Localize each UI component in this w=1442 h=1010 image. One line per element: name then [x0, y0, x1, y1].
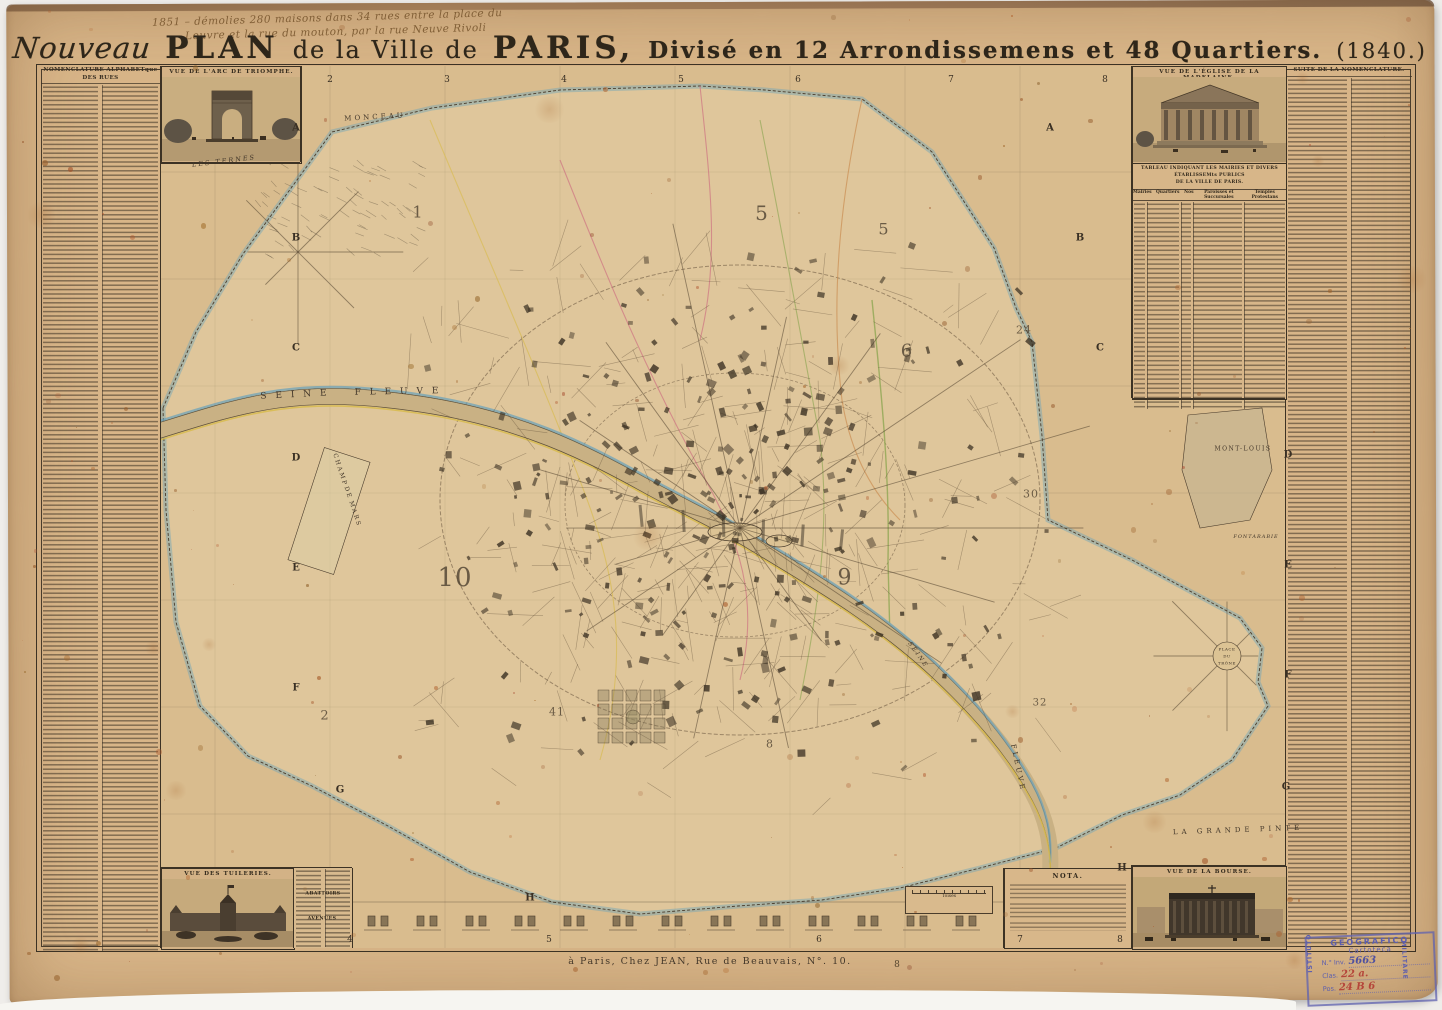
grid-number-top: 2 [327, 75, 333, 85]
margin-letter-left: E [292, 563, 300, 574]
margin-letter-left: C [292, 343, 300, 354]
map-label: F L E U V E [355, 386, 442, 398]
tableau-title-line1: TABLEAU INDIQUANT LES MAIRIES ET DIVERS … [1141, 166, 1278, 178]
column-subheader: AVENUES [308, 917, 337, 922]
divider-bourse-top [1132, 865, 1285, 866]
margin-letter-left: A [292, 123, 300, 134]
district-number: 32 [1033, 698, 1048, 709]
margin-letter-left: H [525, 893, 534, 904]
margin-letter-left: G [336, 785, 345, 796]
grid-number-bottom: 8 [1117, 935, 1123, 945]
district-number: 8 [766, 738, 774, 751]
stamp-clas-label: Clas. [1322, 971, 1338, 980]
divider-left-column [160, 66, 161, 948]
map-label: MONT-LOUIS [1214, 446, 1271, 453]
nota-paragraph-1 [1010, 883, 1126, 899]
margin-letter-right: E [1284, 560, 1292, 571]
bottom-left-mini-column [294, 868, 352, 948]
district-number: 24 [1016, 324, 1032, 337]
nota-title: NOTA. [1005, 869, 1131, 880]
margin-letter-right: D [1284, 450, 1293, 461]
district-number: 30 [1023, 488, 1039, 501]
bourse-engraving [1133, 877, 1286, 947]
stamp-militare: MILITARE [1400, 940, 1409, 980]
margin-letter-right: A [1046, 123, 1054, 134]
district-number: 1 [412, 203, 423, 222]
vignette-arc-de-triomphe: VUE DE L'ARC DE TRIOMPHE. [161, 66, 302, 164]
scan-background-bottom [0, 990, 1296, 1010]
stamp-pos-value: 24 B 6 [1339, 978, 1431, 994]
district-number: 41 [549, 706, 565, 719]
district-number: 5 [878, 220, 889, 239]
divider-tableau-bottom [1132, 398, 1285, 399]
left-column-subcol-1 [43, 85, 98, 951]
district-number: 9 [838, 566, 853, 591]
grid-number-top: 3 [444, 75, 450, 85]
nota-paragraph-2 [1010, 902, 1126, 918]
plate-number: 8 [894, 960, 900, 970]
tableau-col-nos: Nos [1184, 190, 1194, 200]
margin-letter-left: F [292, 683, 299, 694]
tableau-col-paroisses: Paroisses et Succursales [1194, 190, 1244, 200]
column-subheader: ABATTOIRS [305, 892, 340, 897]
margin-letter-left: D [292, 453, 301, 464]
tableau-col-quartiers: Quartiers [1152, 190, 1184, 200]
divider-nota [1003, 868, 1004, 948]
left-column-subcol-2 [102, 85, 158, 951]
scanned-map-page: 1851 – démolies 280 maisons dans 34 rues… [0, 0, 1442, 1010]
grid-number-bottom: 4 [347, 935, 353, 945]
grid-number-top: 5 [678, 75, 684, 85]
vignette-bourse-caption: VUE DE LA BOURSE. [1133, 869, 1286, 875]
grid-number-bottom: 6 [816, 935, 822, 945]
nota-paragraph-3 [1010, 921, 1126, 931]
arc-de-triomphe-engraving [162, 77, 301, 161]
right-column-text [1286, 77, 1412, 945]
right-column-subcol-2 [1351, 78, 1411, 944]
vignette-tuileries-caption: VUE DES TUILERIES. [162, 871, 294, 877]
district-number: 6 [901, 341, 913, 362]
map-label: TRÔNE [1218, 661, 1236, 666]
nota-block: NOTA. [1004, 868, 1132, 949]
divider-arc-vignette [300, 66, 301, 162]
publisher-imprint: à Paris, Chez JEAN, Rue de Beauvais, N°.… [360, 956, 1060, 967]
tableau-col-temples: Temples Protestans [1244, 190, 1286, 200]
scale-label: Toises [942, 894, 956, 899]
margin-letter-right: B [1076, 233, 1084, 244]
district-number: 5 [755, 201, 769, 225]
tableau-column-headers: Mairies Quartiers Nos Paroisses et Succu… [1133, 190, 1286, 201]
margin-letter-right: G [1282, 782, 1291, 793]
grid-number-top: 7 [948, 75, 954, 85]
mini-column-text [294, 868, 352, 948]
right-column-subcol-1 [1288, 78, 1347, 944]
scale-box: Toises [905, 886, 993, 914]
grid-number-top: 6 [795, 75, 801, 85]
left-column-text [41, 84, 160, 952]
left-nomenclature-column: NOMENCLATURE ALPHABETque DES RUES [41, 66, 160, 948]
tableau-col-mairies: Mairies [1133, 190, 1152, 200]
vignette-madelaine: VUE DE L'ÉGLISE DE LA MADELAINE. [1132, 66, 1287, 165]
district-number: 2 [320, 709, 329, 724]
grid-number-top: 4 [561, 75, 567, 85]
tableau-body [1133, 201, 1286, 410]
margin-letter-right: H [1117, 863, 1126, 874]
library-stamp: GEOGRAFICO ISTITUTO MILITARE Cartoteca N… [1305, 931, 1438, 1007]
map-label: FONTARABIE [1233, 534, 1278, 540]
stamp-pos-label: Pos. [1323, 985, 1336, 994]
vignette-tuileries: VUE DES TUILERIES. [161, 868, 295, 950]
vignette-arc-caption: VUE DE L'ARC DE TRIOMPHE. [162, 69, 301, 75]
stamp-inv-label: N.° Inv. [1322, 958, 1346, 967]
tuileries-engraving [162, 879, 294, 947]
margin-letter-right: F [1284, 670, 1291, 681]
grid-number-bottom: 7 [1017, 935, 1023, 945]
grid-number-bottom: 5 [546, 935, 552, 945]
right-column-header: SUITE DE LA NOMENCLATURE. [1286, 66, 1412, 77]
left-column-header: NOMENCLATURE ALPHABETque DES RUES [41, 66, 160, 84]
map-label: DU [1223, 654, 1231, 659]
grid-number-top: 8 [1102, 75, 1108, 85]
mini-column-subcol-1 [296, 869, 321, 947]
tableau-title-line2: DE LA VILLE DE PARIS. [1176, 180, 1244, 185]
tableau-mairies: TABLEAU INDIQUANT LES MAIRIES ET DIVERS … [1132, 163, 1287, 400]
map-label: PLACE [1219, 647, 1236, 652]
madelaine-engraving [1133, 77, 1286, 162]
district-number: 10 [437, 563, 472, 593]
vignette-bourse: VUE DE LA BOURSE. [1132, 866, 1287, 950]
margin-letter-left: B [292, 233, 300, 244]
margin-letter-right: C [1096, 343, 1104, 354]
right-nomenclature-column: SUITE DE LA NOMENCLATURE. [1286, 66, 1412, 948]
